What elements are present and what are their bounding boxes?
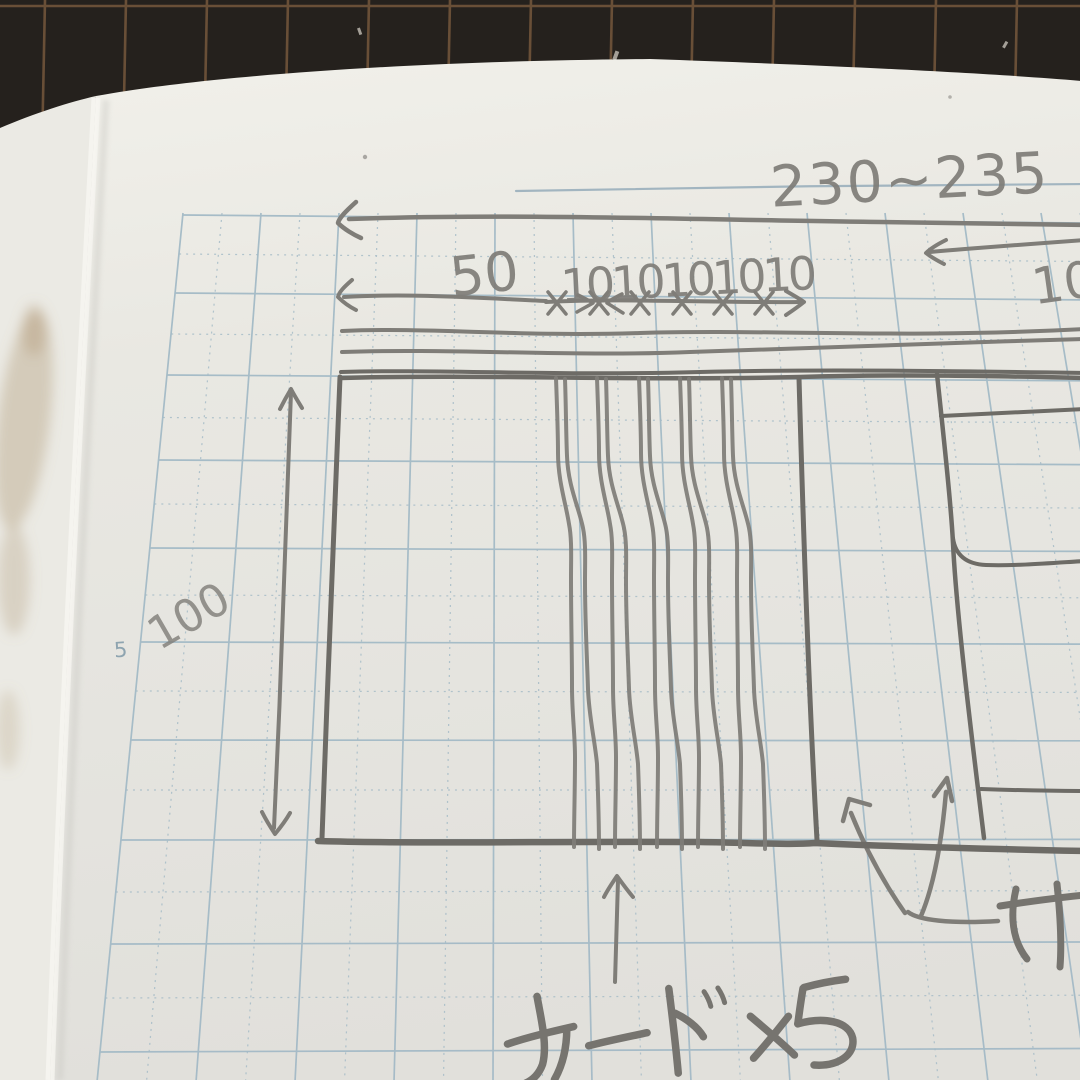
panel-top-edge-2: [341, 375, 1080, 378]
pencil-dot: [948, 95, 952, 99]
clipped-word: け: [1000, 877, 1080, 976]
notebook-photo: 5: [0, 0, 1080, 1080]
clipped-word-text: け: [1005, 877, 1080, 976]
sketch-scene: 5: [0, 0, 1080, 1080]
right-partial-label: 10: [1028, 250, 1080, 316]
left-section-label: 50: [447, 239, 522, 309]
right-panel-bottom-line: [981, 789, 1080, 791]
paper-margin-number: 5: [113, 638, 128, 663]
pencil-dot: [363, 155, 367, 159]
panel-top-edge: [341, 370, 1080, 373]
